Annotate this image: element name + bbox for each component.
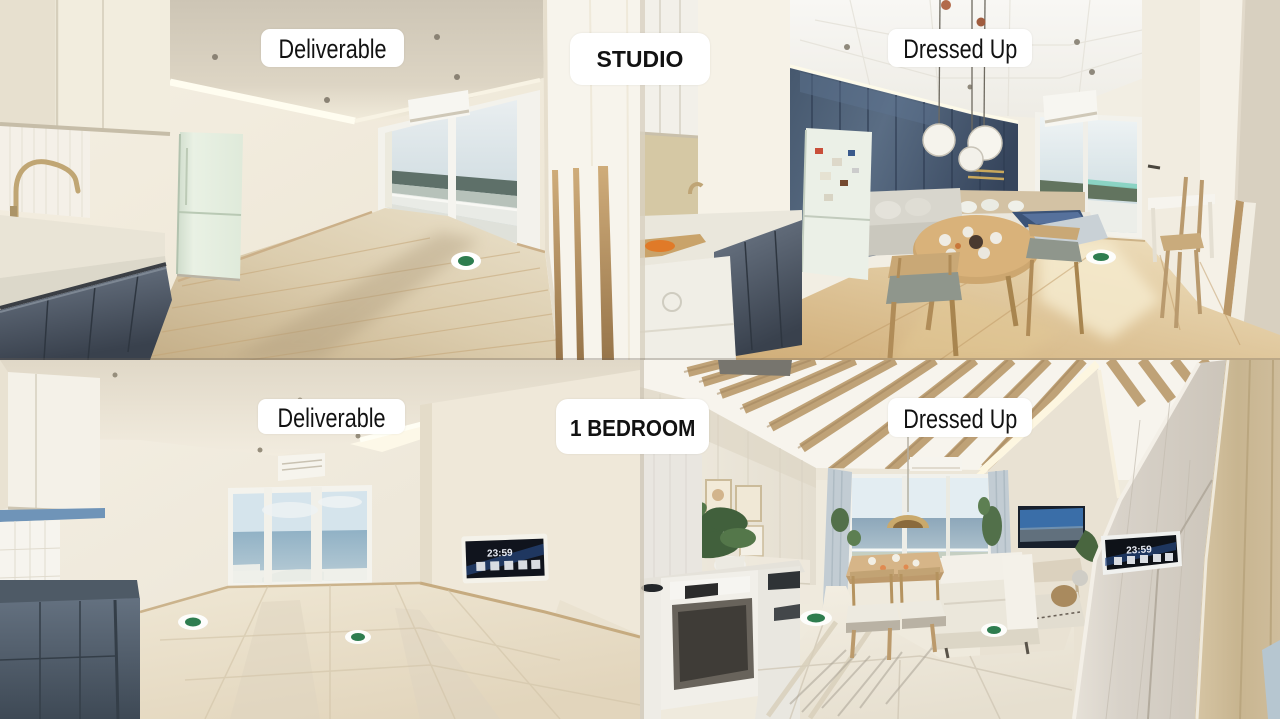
svg-text:23:59: 23:59 <box>487 548 513 560</box>
svg-text:23:59: 23:59 <box>1126 544 1153 556</box>
